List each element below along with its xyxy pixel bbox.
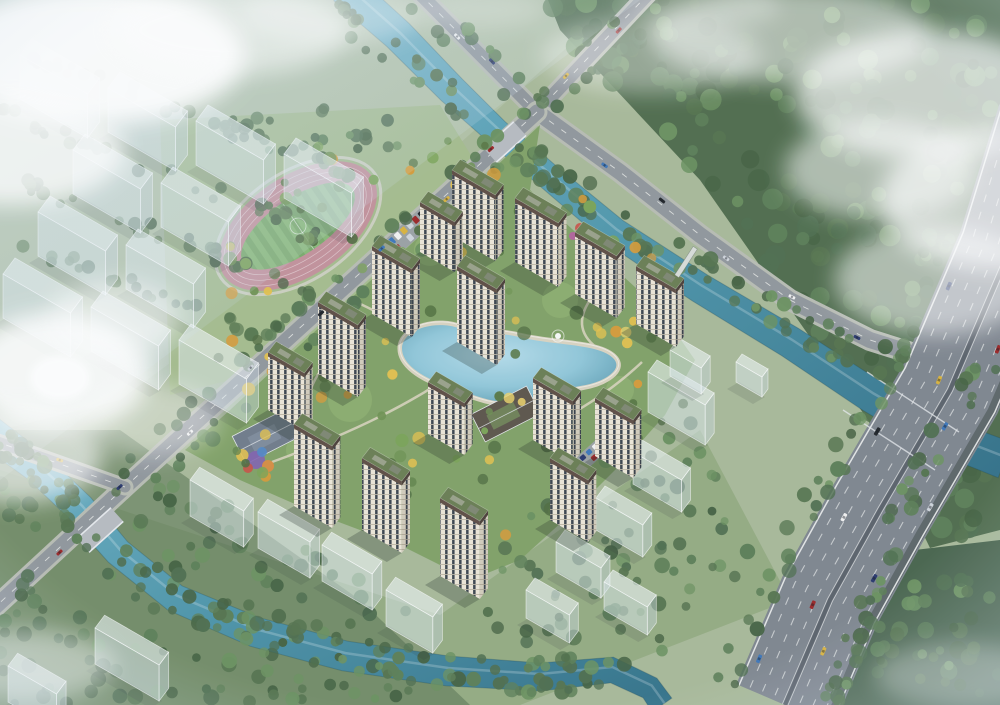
atmosphere-layer (0, 0, 1000, 705)
aerial-rendering-stage: Photoreal bird's-eye CGI rendering of a … (0, 0, 1000, 705)
cool-tint (0, 0, 1000, 705)
aerial-rendering (0, 0, 1000, 705)
